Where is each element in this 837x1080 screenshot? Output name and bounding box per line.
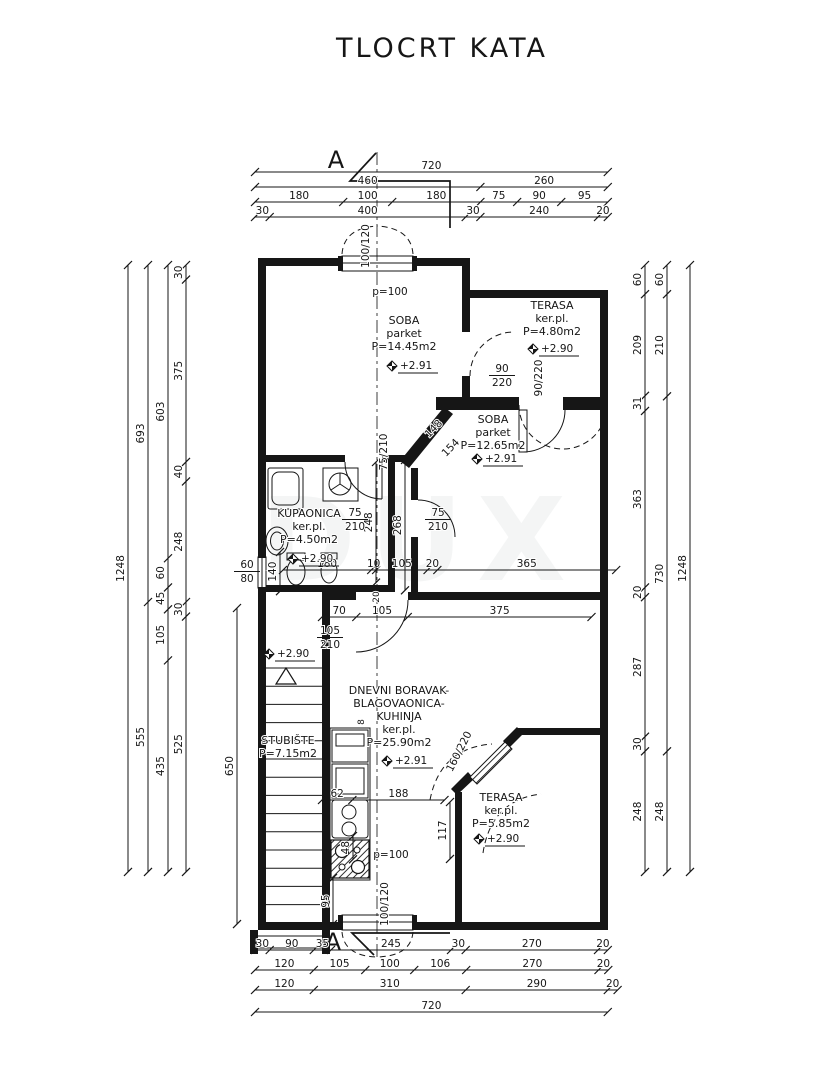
dimension-value: 240 — [529, 205, 549, 217]
dimension-chain: 720 — [251, 160, 612, 176]
dimension-value: 209 — [632, 335, 644, 355]
opening-label: 100/120 — [379, 882, 391, 926]
dimension-value: 525 — [173, 734, 185, 754]
elevation-marker: +2.91 — [472, 453, 523, 466]
dimension-value: 270 — [522, 938, 542, 950]
dimension-value: 140 — [267, 562, 279, 582]
dimension-value: 603 — [155, 402, 167, 422]
wall — [258, 590, 266, 930]
room-label-soba2: SOBAparketP=12.65m2 — [460, 413, 525, 452]
opening-label: 20 — [372, 591, 382, 603]
floor-plan-canvas: DUX TLOCRT KATA A A — [0, 0, 837, 1080]
dimension-value: 20 — [597, 958, 610, 970]
wall — [258, 266, 266, 555]
dimension-value: 363 — [632, 489, 644, 509]
opening-label: 90/220 — [533, 360, 545, 397]
room-label-terasa1: TERASAker.pl.P=4.80m2 — [523, 299, 581, 338]
dimension-value: 35 — [316, 938, 329, 950]
wall — [413, 258, 470, 266]
wall — [258, 258, 342, 266]
dimension-chain: 12031029020 — [251, 978, 622, 994]
dimension-chain: 693555 — [135, 261, 152, 876]
terasa1-bottom-door-swing — [523, 410, 565, 452]
dimension-chain: 117 — [437, 798, 454, 863]
wall — [266, 455, 345, 462]
wall — [411, 537, 418, 592]
dimension-value: 30 — [173, 266, 185, 279]
terasa1-bottom-door-swing-dashed — [519, 405, 607, 449]
dimension-value: 75 — [492, 190, 505, 202]
dimension-value: 30 — [256, 938, 269, 950]
opening-size: 105 — [320, 625, 340, 637]
terasa2-door-leaf — [470, 742, 512, 784]
opening-size: 75 — [348, 507, 361, 519]
dimension-value: 1248 — [115, 555, 127, 582]
elevation-value: +2.91 — [400, 360, 432, 372]
elevation-marker: +2.90 — [474, 833, 525, 846]
dimension-chain: 650 — [224, 604, 241, 928]
opening-size: 210 — [428, 521, 448, 533]
room-area: P=5.85m2 — [472, 817, 530, 830]
dimension-value: 248 — [654, 802, 666, 822]
dimension-value: 60 — [155, 566, 167, 579]
room-name_line1: DNEVNI BORAVAK- — [349, 684, 450, 697]
opening-size: 60 — [240, 559, 253, 571]
dimension-value: 245 — [381, 938, 401, 950]
elevation-value: +2.90 — [487, 833, 519, 845]
opening-size: 75 — [431, 507, 444, 519]
elevation-marker: +2.91 — [387, 360, 438, 373]
dimension-value: 248 — [632, 802, 644, 822]
wall — [462, 376, 470, 397]
room-label-soba1: SOBAparketP=14.45m2 — [371, 314, 436, 353]
room-name: STUBIŠTE — [261, 734, 314, 747]
dimension-value: 45 — [155, 592, 167, 605]
dimension-value: 30 — [632, 737, 644, 750]
dimension-chain: 12010510010627020 — [251, 958, 612, 974]
dimension-value: 90 — [533, 190, 546, 202]
dimension-value: 180 — [289, 190, 309, 202]
dimension-value: 117 — [437, 820, 449, 840]
opening-size: 80 — [240, 573, 253, 585]
floor-plan-page: DUX TLOCRT KATA A A — [0, 0, 837, 1080]
wall — [600, 298, 608, 930]
dimension-value: 720 — [421, 160, 441, 172]
room-name: SOBA — [389, 314, 420, 327]
staircase — [258, 668, 322, 948]
dimension-value: 555 — [135, 727, 147, 747]
dimension-value: 693 — [135, 423, 147, 443]
wall — [436, 397, 519, 410]
dimension-value: 30 — [466, 205, 479, 217]
dimension-chain: 6036045105435 — [155, 261, 172, 876]
dimension-value: 460 — [358, 175, 378, 187]
room-name: SOBA — [478, 413, 509, 426]
dimension-value: 188 — [388, 788, 408, 800]
kitchen-counter — [330, 728, 370, 880]
wall — [455, 792, 462, 922]
dimension-value: 290 — [527, 978, 547, 990]
kitchen-sink — [332, 800, 368, 838]
dimension-value: 105 — [330, 958, 350, 970]
opening-size: 220 — [492, 377, 512, 389]
opening-label: 8 — [357, 719, 367, 725]
dimension-chain: 60210730248 — [654, 261, 671, 876]
wall — [266, 585, 388, 592]
dimension-value: 60 — [632, 273, 644, 286]
opening-label: 154 — [440, 436, 463, 459]
elevation-value: +2.91 — [485, 453, 517, 465]
dimension-value: 270 — [522, 958, 542, 970]
dimension-chain: 60209313632028730248 — [632, 261, 649, 876]
dimension-value: 120 — [274, 958, 294, 970]
dimension-value: 375 — [490, 605, 510, 617]
opening-size: 210 — [320, 639, 340, 651]
opening-label: 6080 — [234, 559, 260, 585]
elevation-value: +2.91 — [395, 755, 427, 767]
elevation-value: +2.90 — [541, 343, 573, 355]
dimension-value: 30 — [452, 938, 465, 950]
room-name: TERASA — [478, 791, 523, 804]
dimension-value: 720 — [421, 1000, 441, 1012]
wall — [408, 592, 600, 600]
dimension-value: 100 — [358, 190, 378, 202]
room-label-stubiste: STUBIŠTEP=7.15m2 — [259, 734, 317, 760]
wall — [563, 397, 600, 410]
dimension-value: 106 — [430, 958, 450, 970]
dimension-value: 435 — [155, 756, 167, 776]
dimension-chain: 3090352453027020 — [251, 938, 612, 954]
dimension-value: 20 — [596, 938, 609, 950]
wall — [462, 290, 608, 298]
dimension-value: 70 — [332, 605, 345, 617]
opening-label: p=100 — [372, 286, 408, 298]
opening-size: 90 — [495, 363, 508, 375]
dimension-value: 287 — [632, 657, 644, 677]
dimension-value: 310 — [380, 978, 400, 990]
dimension-value: 31 — [632, 397, 644, 410]
room-floor: ker.pl. — [292, 520, 325, 533]
section-label-top: A — [328, 146, 345, 174]
dimension-value: 260 — [534, 175, 554, 187]
dimension-value: 730 — [654, 564, 666, 584]
room-area: P=4.80m2 — [523, 325, 581, 338]
dimension-value: 400 — [358, 205, 378, 217]
dimension-value: 1248 — [677, 555, 689, 582]
diagonal-wall-stub — [451, 772, 474, 795]
dimension-value: 180 — [426, 190, 446, 202]
dimension-value: 105 — [392, 558, 412, 570]
dimension-value: 95 — [578, 190, 591, 202]
opening-label: 105210 — [317, 625, 343, 651]
room-name_line3: KUHINJA — [376, 710, 422, 723]
wall — [322, 592, 356, 600]
dimension-value: 10 — [367, 558, 380, 570]
dimension-chain: 180100180759095 — [251, 190, 612, 206]
stair-direction-arrow — [276, 668, 296, 684]
dimension-value: 20 — [596, 205, 609, 217]
dimension-chain: 1248 — [677, 261, 694, 876]
room-floor: ker.pl. — [382, 723, 415, 736]
room-name: KUPAONICA — [277, 507, 341, 520]
dimension-value: 210 — [654, 335, 666, 355]
room-floor: ker.pl. — [535, 312, 568, 325]
room-label-terasa2: TERASAker.pl.P=5.85m2 — [472, 791, 530, 830]
elevation-marker: +2.91 — [382, 755, 433, 768]
dimension-value: 105 — [155, 625, 167, 645]
dimension-value: 650 — [224, 756, 236, 776]
room-floor: parket — [475, 426, 511, 439]
room-area: P=4.50m2 — [280, 533, 338, 546]
wall — [413, 922, 608, 930]
dimension-value: 375 — [173, 361, 185, 381]
dimension-value: 268 — [392, 515, 404, 535]
elevation-value: +2.90 — [301, 553, 333, 565]
room-area: P=7.15m2 — [259, 747, 317, 760]
bottom-window — [338, 915, 417, 957]
opening-label: 160/220 — [444, 729, 474, 773]
dimension-chain: 304003024020 — [251, 205, 612, 221]
elevation-value: +2.90 — [277, 648, 309, 660]
dimension-value: 105 — [372, 605, 392, 617]
top-window — [338, 226, 417, 271]
elevation-marker: +2.90 — [264, 648, 315, 661]
dimension-value: 365 — [517, 558, 537, 570]
dimension-value: 40 — [173, 465, 185, 478]
dimension-value: 20 — [632, 586, 644, 599]
room-floor: parket — [386, 327, 422, 340]
dimension-value: 95 — [320, 894, 332, 907]
opening-size: 210 — [345, 521, 365, 533]
room-area: P=12.65m2 — [460, 439, 525, 452]
dimension-value: 100 — [380, 958, 400, 970]
dimension-value: 20 — [606, 978, 619, 990]
opening-label: 75/210 — [378, 434, 390, 471]
opening-label: 90220 — [489, 363, 515, 389]
wall — [258, 922, 342, 930]
room-area: P=25.90m2 — [366, 736, 431, 749]
dimension-value: 60 — [654, 273, 666, 286]
dimension-chain: 62188 — [318, 788, 449, 804]
dimension-chain: 720 — [251, 1000, 612, 1016]
opening-label: 100/120 — [360, 224, 372, 268]
dimension-value: 62 — [331, 788, 344, 800]
wall — [517, 728, 600, 735]
dimension-value: 20 — [426, 558, 439, 570]
wall — [411, 468, 418, 500]
room-name: TERASA — [529, 299, 574, 312]
dimension-value: 48 — [340, 841, 352, 854]
room-name_line2: BLAGOVAONICA- — [353, 697, 444, 710]
elevation-marker: +2.90 — [528, 343, 579, 356]
page-title: TLOCRT KATA — [335, 33, 548, 64]
room-floor: ker.pl. — [484, 804, 517, 817]
dimension-value: 90 — [285, 938, 298, 950]
dimension-chain: 460260 — [251, 175, 612, 191]
dimension-chain: 303754024830525 — [173, 261, 190, 876]
dimension-value: 248 — [173, 532, 185, 552]
opening-label: p=100 — [373, 849, 409, 861]
dimension-value: 120 — [274, 978, 294, 990]
room-area: P=14.45m2 — [371, 340, 436, 353]
dimension-value: 30 — [256, 205, 269, 217]
dimension-chain: 1248 — [115, 261, 132, 876]
dimension-value: 30 — [173, 603, 185, 616]
